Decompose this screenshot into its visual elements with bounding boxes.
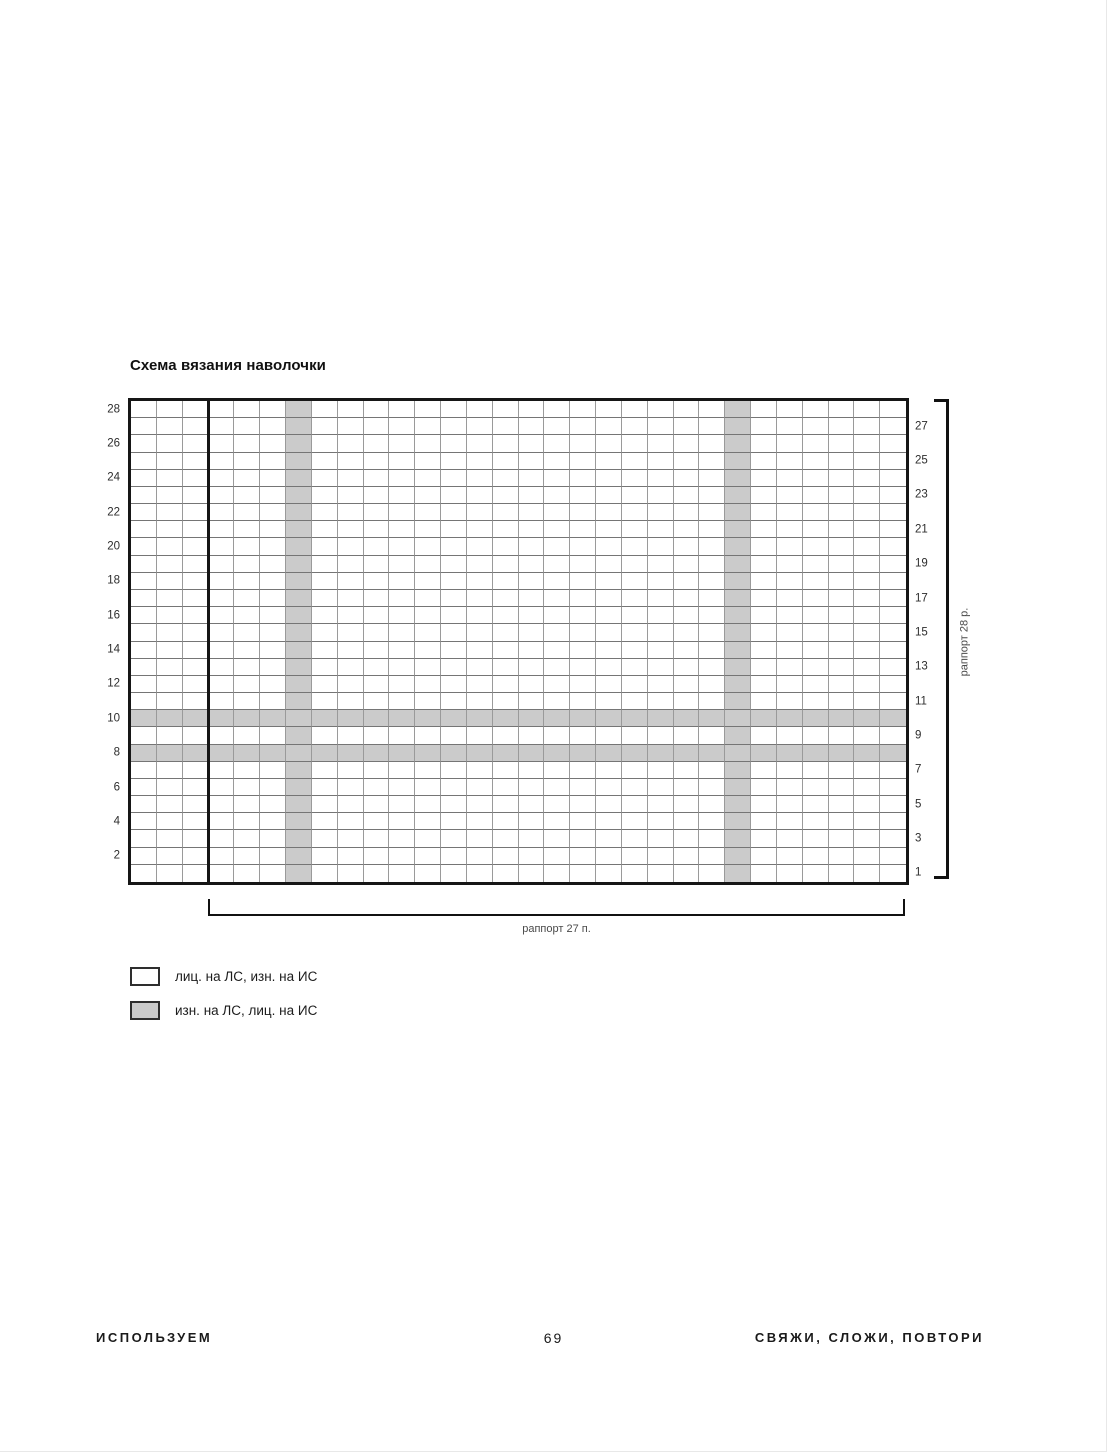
chart-cell bbox=[519, 521, 545, 538]
chart-cell bbox=[364, 830, 390, 847]
chart-cell bbox=[854, 435, 880, 452]
chart-cell bbox=[286, 453, 312, 470]
chart-cell bbox=[803, 556, 829, 573]
chart-cell bbox=[286, 848, 312, 865]
chart-cell bbox=[209, 401, 235, 418]
chart-cell bbox=[415, 693, 441, 710]
chart-cell bbox=[880, 813, 906, 830]
chart-cell bbox=[880, 642, 906, 659]
chart-cell bbox=[364, 710, 390, 727]
chart-cell bbox=[234, 521, 260, 538]
chart-cell bbox=[441, 435, 467, 452]
chart-cell bbox=[803, 487, 829, 504]
chart-cell bbox=[880, 504, 906, 521]
chart-cell bbox=[544, 607, 570, 624]
chart-cell bbox=[260, 487, 286, 504]
chart-cell bbox=[544, 813, 570, 830]
chart-legend: лиц. на ЛС, изн. на ИСизн. на ЛС, лиц. н… bbox=[130, 966, 317, 1034]
chart-cell bbox=[622, 693, 648, 710]
chart-cell bbox=[596, 590, 622, 607]
chart-cell bbox=[803, 624, 829, 641]
chart-cell bbox=[751, 710, 777, 727]
chart-cell bbox=[519, 693, 545, 710]
chart-cell bbox=[183, 830, 209, 847]
chart-cell bbox=[389, 676, 415, 693]
chart-cell bbox=[234, 470, 260, 487]
chart-cell bbox=[183, 538, 209, 555]
chart-cell bbox=[389, 538, 415, 555]
chart-cell bbox=[699, 710, 725, 727]
chart-cell bbox=[699, 830, 725, 847]
chart-cell bbox=[570, 607, 596, 624]
row-repeat-label-box: раппорт 28 р. bbox=[950, 401, 978, 882]
chart-cell bbox=[622, 779, 648, 796]
chart-cell bbox=[829, 745, 855, 762]
chart-cell bbox=[493, 418, 519, 435]
chart-cell bbox=[234, 590, 260, 607]
chart-cell bbox=[725, 470, 751, 487]
chart-cell bbox=[467, 504, 493, 521]
chart-cell bbox=[389, 624, 415, 641]
chart-cell bbox=[467, 435, 493, 452]
chart-cell bbox=[441, 504, 467, 521]
chart-cell bbox=[441, 401, 467, 418]
chart-cell bbox=[648, 693, 674, 710]
chart-cell bbox=[389, 659, 415, 676]
chart-cell bbox=[622, 624, 648, 641]
chart-cell bbox=[415, 727, 441, 744]
chart-cell bbox=[674, 590, 700, 607]
chart-cell bbox=[622, 487, 648, 504]
chart-cell bbox=[803, 642, 829, 659]
chart-cell bbox=[209, 607, 235, 624]
chart-cell bbox=[570, 521, 596, 538]
chart-cell bbox=[467, 487, 493, 504]
chart-cell bbox=[622, 538, 648, 555]
chart-cell bbox=[854, 813, 880, 830]
chart-cell bbox=[415, 470, 441, 487]
chart-cell bbox=[674, 470, 700, 487]
chart-cell bbox=[674, 607, 700, 624]
chart-cell bbox=[467, 556, 493, 573]
chart-cell bbox=[622, 830, 648, 847]
chart-cell bbox=[493, 693, 519, 710]
chart-cell bbox=[183, 504, 209, 521]
chart-cell bbox=[183, 556, 209, 573]
chart-cell bbox=[441, 796, 467, 813]
chart-cell bbox=[519, 796, 545, 813]
chart-cell bbox=[441, 676, 467, 693]
chart-cell bbox=[519, 865, 545, 882]
chart-cell bbox=[209, 813, 235, 830]
chart-cell bbox=[854, 745, 880, 762]
chart-cell bbox=[312, 487, 338, 504]
chart-cell bbox=[854, 556, 880, 573]
chart-cell bbox=[183, 607, 209, 624]
chart-cell bbox=[260, 504, 286, 521]
chart-cell bbox=[699, 590, 725, 607]
chart-cell bbox=[829, 813, 855, 830]
chart-cell bbox=[467, 813, 493, 830]
chart-cell bbox=[854, 865, 880, 882]
chart-cell bbox=[234, 693, 260, 710]
chart-cell bbox=[596, 435, 622, 452]
chart-cell bbox=[622, 727, 648, 744]
chart-cell bbox=[364, 470, 390, 487]
chart-cell bbox=[234, 727, 260, 744]
chart-cell bbox=[725, 745, 751, 762]
chart-cell bbox=[338, 796, 364, 813]
chart-cell bbox=[544, 401, 570, 418]
chart-cell bbox=[183, 745, 209, 762]
chart-cell bbox=[699, 487, 725, 504]
chart-cell bbox=[415, 607, 441, 624]
chart-cell bbox=[803, 453, 829, 470]
chart-cell bbox=[441, 848, 467, 865]
row-number: 26 bbox=[86, 438, 120, 450]
chart-cell bbox=[803, 590, 829, 607]
chart-cell bbox=[312, 556, 338, 573]
chart-cell bbox=[544, 556, 570, 573]
chart-cell bbox=[751, 762, 777, 779]
chart-cell bbox=[880, 676, 906, 693]
chart-cell bbox=[441, 693, 467, 710]
chart-cell bbox=[312, 813, 338, 830]
chart-cell bbox=[286, 487, 312, 504]
chart-cell bbox=[725, 779, 751, 796]
chart-cell bbox=[260, 865, 286, 882]
chart-cell bbox=[570, 401, 596, 418]
chart-cell bbox=[467, 865, 493, 882]
chart-cell bbox=[854, 710, 880, 727]
chart-cell bbox=[467, 624, 493, 641]
chart-cell bbox=[260, 624, 286, 641]
chart-cell bbox=[441, 642, 467, 659]
chart-cell bbox=[209, 573, 235, 590]
chart-cell bbox=[829, 607, 855, 624]
chart-cell bbox=[260, 710, 286, 727]
chart-cell bbox=[234, 556, 260, 573]
chart-cell bbox=[854, 642, 880, 659]
chart-cell bbox=[519, 727, 545, 744]
chart-cell bbox=[131, 848, 157, 865]
chart-cell bbox=[467, 418, 493, 435]
chart-cell bbox=[209, 745, 235, 762]
chart-cell bbox=[751, 624, 777, 641]
chart-cell bbox=[725, 796, 751, 813]
chart-cell bbox=[570, 865, 596, 882]
chart-cell bbox=[519, 401, 545, 418]
chart-cell bbox=[338, 504, 364, 521]
chart-cell bbox=[157, 538, 183, 555]
chart-cell bbox=[854, 607, 880, 624]
chart-cell bbox=[364, 556, 390, 573]
chart-cell bbox=[260, 573, 286, 590]
chart-cell bbox=[803, 848, 829, 865]
chart-cell bbox=[803, 762, 829, 779]
chart-cell bbox=[338, 453, 364, 470]
knitting-chart bbox=[128, 398, 909, 885]
chart-cell bbox=[415, 487, 441, 504]
chart-cell bbox=[157, 642, 183, 659]
chart-cell bbox=[699, 418, 725, 435]
chart-cell bbox=[544, 745, 570, 762]
chart-cell bbox=[157, 848, 183, 865]
chart-cell bbox=[596, 676, 622, 693]
chart-cell bbox=[260, 796, 286, 813]
chart-cell bbox=[364, 779, 390, 796]
chart-cell bbox=[157, 830, 183, 847]
chart-cell bbox=[880, 453, 906, 470]
chart-cell bbox=[648, 504, 674, 521]
chart-cell bbox=[699, 607, 725, 624]
stitch-repeat-bracket bbox=[208, 899, 905, 916]
chart-cell bbox=[777, 487, 803, 504]
chart-cell bbox=[829, 676, 855, 693]
chart-cell bbox=[131, 401, 157, 418]
chart-cell bbox=[364, 676, 390, 693]
chart-cell bbox=[880, 693, 906, 710]
chart-cell bbox=[570, 676, 596, 693]
chart-cell bbox=[777, 727, 803, 744]
chart-cell bbox=[648, 865, 674, 882]
chart-cell bbox=[234, 573, 260, 590]
chart-cell bbox=[364, 727, 390, 744]
chart-cell bbox=[648, 624, 674, 641]
chart-cell bbox=[183, 521, 209, 538]
chart-cell bbox=[777, 538, 803, 555]
chart-cell bbox=[777, 796, 803, 813]
chart-cell bbox=[725, 573, 751, 590]
chart-cell bbox=[880, 556, 906, 573]
chart-cell bbox=[622, 521, 648, 538]
chart-cell bbox=[131, 676, 157, 693]
chart-cell bbox=[622, 796, 648, 813]
chart-cell bbox=[648, 676, 674, 693]
chart-cell bbox=[803, 504, 829, 521]
chart-cell bbox=[493, 401, 519, 418]
chart-cell bbox=[544, 418, 570, 435]
chart-cell bbox=[596, 453, 622, 470]
chart-cell bbox=[622, 762, 648, 779]
chart-cell bbox=[493, 538, 519, 555]
chart-cell bbox=[596, 504, 622, 521]
chart-cell bbox=[286, 470, 312, 487]
chart-cell bbox=[648, 848, 674, 865]
chart-cell bbox=[493, 487, 519, 504]
chart-cell bbox=[183, 676, 209, 693]
chart-cell bbox=[777, 590, 803, 607]
chart-cell bbox=[209, 779, 235, 796]
chart-cell bbox=[699, 745, 725, 762]
chart-cell bbox=[699, 813, 725, 830]
chart-cell bbox=[648, 659, 674, 676]
chart-cell bbox=[829, 796, 855, 813]
chart-cell bbox=[493, 590, 519, 607]
chart-cell bbox=[467, 710, 493, 727]
chart-cell bbox=[803, 470, 829, 487]
chart-cell bbox=[183, 418, 209, 435]
chart-cell bbox=[596, 727, 622, 744]
chart-cell bbox=[467, 659, 493, 676]
chart-cell bbox=[234, 779, 260, 796]
row-number: 28 bbox=[86, 404, 120, 416]
chart-cell bbox=[441, 745, 467, 762]
chart-cell bbox=[829, 865, 855, 882]
chart-cell bbox=[389, 642, 415, 659]
chart-cell bbox=[157, 453, 183, 470]
chart-cell bbox=[467, 676, 493, 693]
chart-cell bbox=[286, 762, 312, 779]
chart-cell bbox=[157, 693, 183, 710]
chart-cell bbox=[312, 659, 338, 676]
chart-cell bbox=[777, 418, 803, 435]
chart-cell bbox=[286, 693, 312, 710]
chart-cell bbox=[364, 453, 390, 470]
chart-cell bbox=[622, 642, 648, 659]
chart-cell bbox=[338, 779, 364, 796]
chart-cell bbox=[415, 745, 441, 762]
chart-cell bbox=[209, 521, 235, 538]
chart-cell bbox=[596, 796, 622, 813]
chart-cell bbox=[570, 762, 596, 779]
chart-cell bbox=[467, 762, 493, 779]
chart-cell bbox=[131, 538, 157, 555]
chart-cell bbox=[829, 556, 855, 573]
row-number: 24 bbox=[86, 473, 120, 485]
chart-cell bbox=[389, 470, 415, 487]
chart-cell bbox=[596, 865, 622, 882]
chart-cell bbox=[312, 435, 338, 452]
chart-cell bbox=[674, 435, 700, 452]
row-number: 4 bbox=[86, 816, 120, 828]
chart-cell bbox=[648, 401, 674, 418]
chart-cell bbox=[622, 573, 648, 590]
chart-cell bbox=[596, 607, 622, 624]
chart-cell bbox=[441, 418, 467, 435]
chart-cell bbox=[260, 538, 286, 555]
chart-cell bbox=[415, 659, 441, 676]
chart-cell bbox=[751, 401, 777, 418]
chart-cell bbox=[131, 573, 157, 590]
chart-cell bbox=[493, 624, 519, 641]
legend-item: лиц. на ЛС, изн. на ИС bbox=[130, 966, 317, 986]
chart-cell bbox=[699, 624, 725, 641]
chart-cell bbox=[880, 727, 906, 744]
chart-cell bbox=[493, 710, 519, 727]
chart-cell bbox=[312, 504, 338, 521]
chart-cell bbox=[648, 418, 674, 435]
chart-cell bbox=[699, 865, 725, 882]
chart-cell bbox=[544, 504, 570, 521]
chart-cell bbox=[415, 813, 441, 830]
chart-cell bbox=[338, 624, 364, 641]
chart-cell bbox=[260, 590, 286, 607]
chart-cell bbox=[364, 848, 390, 865]
chart-cell bbox=[493, 573, 519, 590]
chart-cell bbox=[777, 556, 803, 573]
chart-cell bbox=[854, 418, 880, 435]
chart-cell bbox=[544, 538, 570, 555]
chart-cell bbox=[699, 556, 725, 573]
chart-cell bbox=[157, 401, 183, 418]
chart-cell bbox=[829, 642, 855, 659]
chart-cell bbox=[674, 796, 700, 813]
chart-cell bbox=[131, 796, 157, 813]
row-number: 10 bbox=[86, 713, 120, 725]
chart-cell bbox=[648, 727, 674, 744]
chart-cell bbox=[131, 865, 157, 882]
chart-cell bbox=[441, 813, 467, 830]
chart-cell bbox=[467, 573, 493, 590]
chart-cell bbox=[854, 487, 880, 504]
chart-cell bbox=[777, 779, 803, 796]
chart-cell bbox=[234, 796, 260, 813]
chart-cell bbox=[803, 538, 829, 555]
chart-cell bbox=[544, 573, 570, 590]
chart-cell bbox=[544, 796, 570, 813]
chart-cell bbox=[467, 590, 493, 607]
chart-cell bbox=[260, 693, 286, 710]
chart-cell bbox=[389, 865, 415, 882]
chart-cell bbox=[312, 693, 338, 710]
chart-cell bbox=[674, 710, 700, 727]
chart-cell bbox=[751, 727, 777, 744]
chart-cell bbox=[648, 796, 674, 813]
chart-cell bbox=[234, 607, 260, 624]
chart-cell bbox=[674, 659, 700, 676]
chart-cell bbox=[699, 401, 725, 418]
chart-cell bbox=[570, 796, 596, 813]
chart-cell bbox=[209, 830, 235, 847]
chart-cell bbox=[183, 573, 209, 590]
chart-cell bbox=[854, 590, 880, 607]
chart-cell bbox=[338, 590, 364, 607]
chart-cell bbox=[544, 727, 570, 744]
chart-cell bbox=[493, 642, 519, 659]
chart-cell bbox=[209, 693, 235, 710]
chart-cell bbox=[364, 487, 390, 504]
chart-cell bbox=[751, 607, 777, 624]
chart-cell bbox=[389, 607, 415, 624]
row-number: 6 bbox=[86, 782, 120, 794]
chart-cell bbox=[131, 642, 157, 659]
chart-cell bbox=[493, 504, 519, 521]
chart-cell bbox=[648, 487, 674, 504]
chart-cell bbox=[777, 521, 803, 538]
chart-cell bbox=[544, 590, 570, 607]
chart-cell bbox=[415, 762, 441, 779]
chart-cell bbox=[674, 401, 700, 418]
chart-cell bbox=[725, 676, 751, 693]
chart-cell bbox=[777, 813, 803, 830]
chart-cell bbox=[209, 710, 235, 727]
chart-cell bbox=[467, 693, 493, 710]
chart-cell bbox=[389, 727, 415, 744]
chart-cell bbox=[777, 435, 803, 452]
chart-cell bbox=[699, 848, 725, 865]
chart-cell bbox=[829, 538, 855, 555]
chart-cell bbox=[674, 642, 700, 659]
chart-cell bbox=[338, 762, 364, 779]
legend-label: лиц. на ЛС, изн. на ИС bbox=[175, 969, 317, 984]
chart-cell bbox=[364, 504, 390, 521]
chart-cell bbox=[441, 556, 467, 573]
chart-cell bbox=[415, 418, 441, 435]
chart-cell bbox=[674, 556, 700, 573]
chart-cell bbox=[234, 813, 260, 830]
chart-cell bbox=[880, 590, 906, 607]
